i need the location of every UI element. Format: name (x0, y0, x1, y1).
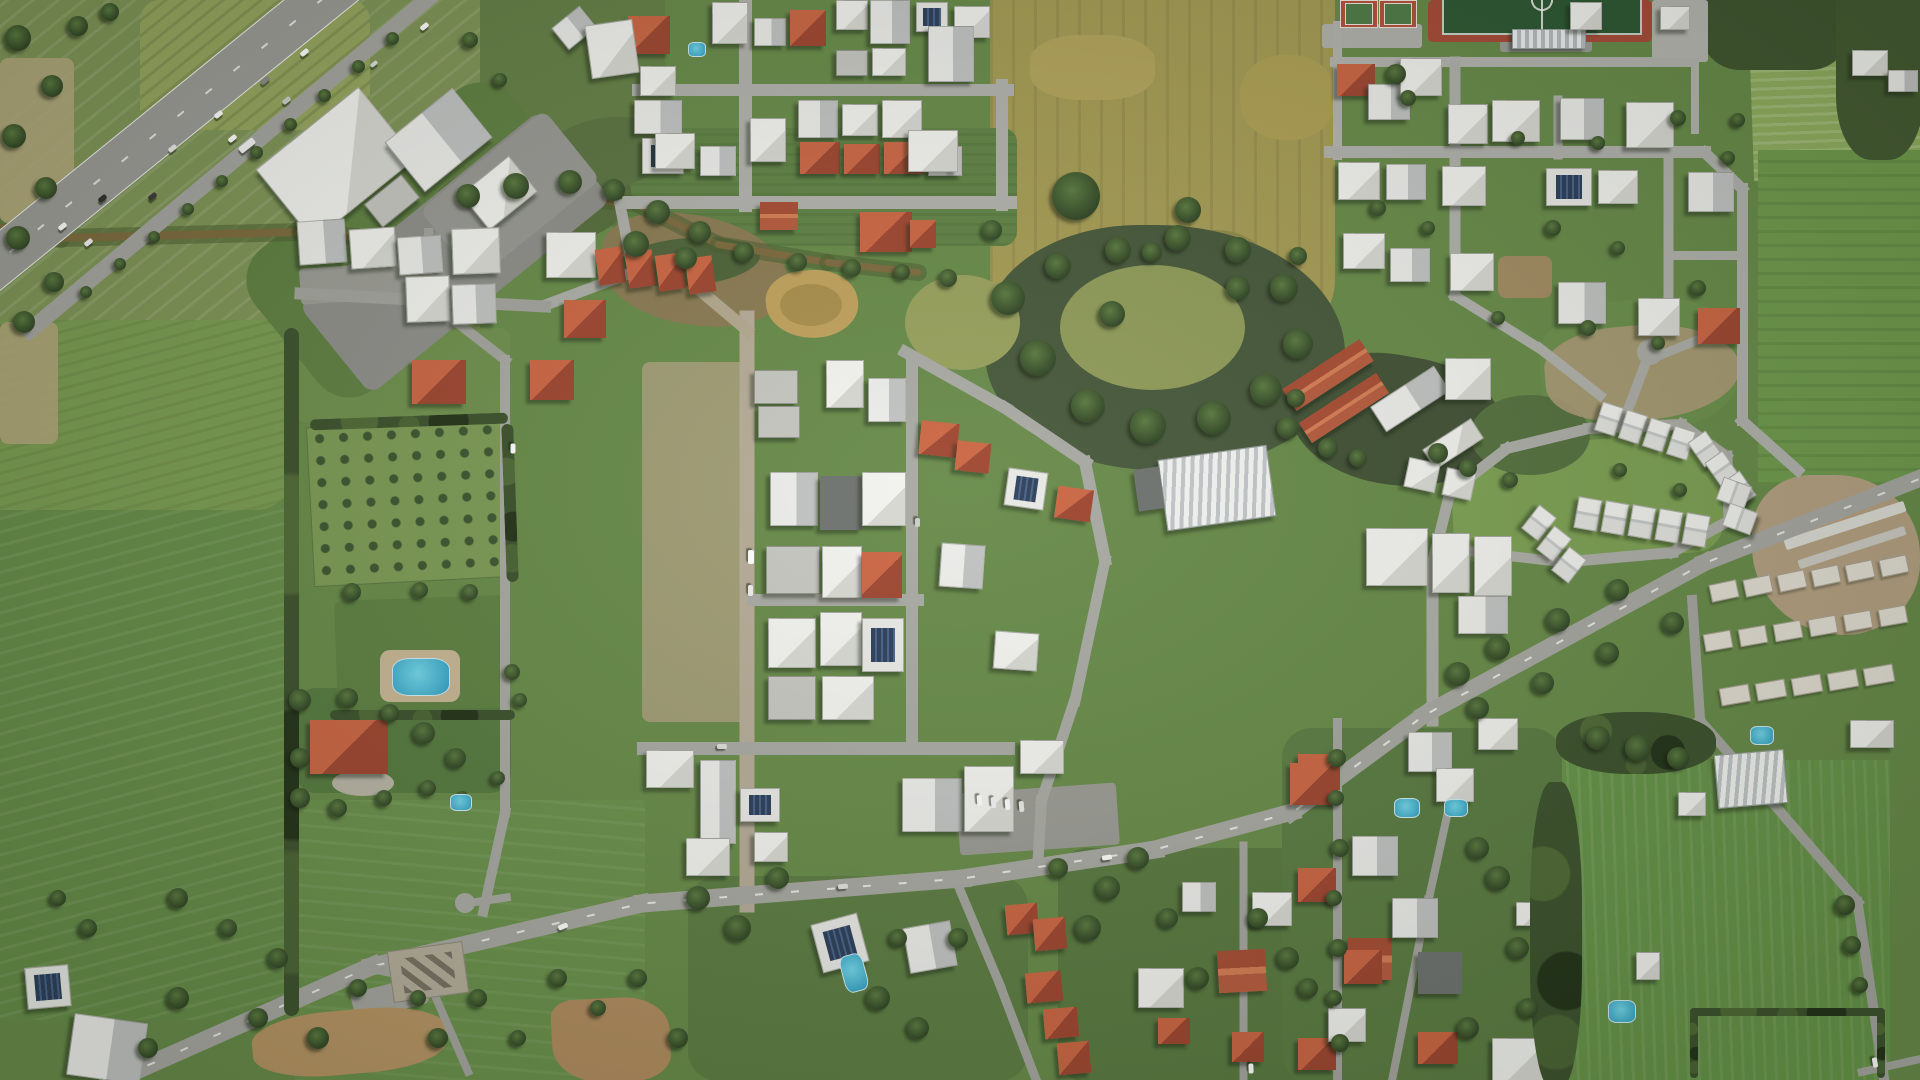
building (700, 760, 736, 844)
tree (1852, 977, 1868, 993)
tennis-court (1340, 0, 1378, 28)
road-segment (1330, 57, 1697, 67)
car (915, 518, 920, 527)
construction-unit (1773, 620, 1804, 643)
building (1458, 596, 1508, 634)
hedge-row (1690, 1008, 1698, 1078)
building (844, 144, 880, 174)
car (717, 744, 727, 749)
building (790, 10, 826, 46)
building (766, 546, 820, 594)
tree (491, 771, 505, 785)
tree (1690, 280, 1706, 296)
tree (1518, 998, 1538, 1018)
tree (1446, 662, 1470, 686)
sports-pavilion (1660, 6, 1690, 30)
tree (1052, 172, 1100, 220)
tree (1270, 274, 1298, 302)
tree (623, 231, 649, 257)
tree (789, 253, 807, 271)
building (1004, 467, 1049, 510)
tree (734, 242, 754, 262)
tree (1127, 847, 1149, 869)
tree (982, 220, 1002, 240)
tree (79, 919, 97, 937)
tree (338, 688, 358, 708)
tree (689, 221, 711, 243)
building (1636, 952, 1660, 980)
tree (290, 748, 310, 768)
building (1478, 718, 1518, 750)
hedge-row (1690, 1008, 1885, 1016)
building (1182, 882, 1216, 912)
building (397, 235, 444, 276)
tree (1511, 131, 1525, 145)
building (1638, 298, 1680, 336)
building (584, 19, 639, 79)
tree (13, 311, 35, 333)
building (655, 133, 695, 169)
building (754, 370, 798, 404)
building (1057, 1041, 1092, 1076)
building (955, 440, 992, 473)
building (1850, 720, 1894, 748)
tree (420, 780, 436, 796)
building (634, 100, 682, 134)
building (1138, 968, 1184, 1008)
car (1019, 801, 1025, 812)
tree (2, 124, 26, 148)
building (1598, 170, 1638, 204)
tree (1298, 978, 1318, 998)
building (939, 543, 986, 590)
tree (646, 200, 670, 224)
building (640, 66, 676, 96)
building (842, 104, 878, 136)
tree (1502, 472, 1518, 488)
tree (1289, 247, 1307, 265)
construction-unit (1791, 674, 1824, 697)
building (870, 0, 910, 44)
road-segment (906, 356, 918, 754)
hedge-row (1877, 1008, 1885, 1078)
tree (1326, 890, 1342, 906)
building (700, 146, 736, 176)
tree (1457, 1017, 1479, 1039)
tree (767, 867, 789, 889)
road-segment (1691, 58, 1699, 134)
building (1678, 792, 1706, 816)
building (451, 283, 496, 325)
building (820, 476, 862, 530)
building (754, 18, 786, 46)
road-segment (1663, 150, 1673, 317)
tree (1662, 612, 1684, 634)
tree (148, 231, 160, 243)
tree (939, 269, 957, 287)
tree (6, 226, 30, 250)
building (862, 552, 902, 598)
tree (603, 179, 625, 201)
building (836, 50, 868, 76)
tree (629, 969, 647, 987)
tree (1277, 947, 1299, 969)
paved-lot (642, 362, 750, 722)
building (872, 48, 906, 76)
tree (50, 890, 66, 906)
construction-unit (1738, 625, 1769, 648)
building (349, 226, 398, 269)
estate-apartment-block (1366, 528, 1428, 586)
tree (894, 264, 910, 280)
building (1698, 308, 1740, 344)
building (546, 232, 596, 278)
building (798, 100, 838, 138)
tree (248, 1008, 268, 1028)
tree (1532, 672, 1554, 694)
car (977, 795, 983, 806)
paved-lot (550, 995, 672, 1080)
swimming-pool (688, 42, 706, 57)
construction-unit (1878, 605, 1909, 628)
tree (549, 969, 567, 987)
building (740, 788, 780, 822)
tree (1326, 990, 1342, 1006)
tree (558, 170, 582, 194)
tree (35, 177, 57, 199)
tree (268, 948, 288, 968)
tree (1283, 329, 1313, 359)
building (908, 130, 958, 172)
tree (1611, 241, 1625, 255)
tree (1459, 459, 1477, 477)
road-segment (740, 311, 755, 913)
tree (44, 272, 64, 292)
building (1392, 898, 1438, 938)
tree (412, 582, 428, 598)
tree (318, 89, 331, 102)
tree (1331, 839, 1349, 857)
building (712, 2, 748, 44)
tree (1486, 866, 1510, 890)
building (1570, 2, 1602, 30)
tree (590, 1000, 606, 1016)
tree (504, 664, 520, 680)
building (800, 142, 840, 174)
building (993, 631, 1040, 672)
tree (456, 184, 480, 208)
building (1338, 162, 1380, 200)
field-patch (1240, 55, 1335, 140)
building (686, 838, 730, 876)
hedge-row (330, 710, 515, 720)
building (1418, 952, 1462, 994)
building (1386, 164, 1426, 200)
tree (510, 1030, 526, 1046)
tree (843, 259, 861, 277)
tree (289, 689, 311, 711)
roadside-commercial (902, 778, 962, 832)
swimming-pool (1394, 798, 1420, 818)
tree (68, 16, 88, 36)
building (1546, 168, 1592, 206)
building (405, 275, 451, 323)
field-patch (1030, 35, 1155, 100)
building (1558, 282, 1606, 324)
tree (1248, 908, 1268, 928)
tree (889, 929, 907, 947)
orange-villa (1217, 949, 1267, 993)
tree (381, 704, 399, 722)
tree (1045, 253, 1071, 279)
car (1248, 1063, 1253, 1073)
tree (290, 788, 310, 808)
tree (1328, 749, 1346, 767)
tree (866, 986, 890, 1010)
building (530, 360, 574, 400)
tree (349, 979, 367, 997)
tree (138, 1038, 158, 1058)
sediment-pond (780, 284, 842, 326)
tree (1731, 113, 1745, 127)
tree (513, 693, 527, 707)
tree (1670, 110, 1686, 126)
tree (352, 60, 365, 73)
steel-warehouse (1158, 445, 1277, 532)
tree (1105, 237, 1131, 263)
tree (675, 247, 697, 269)
building (1390, 248, 1430, 282)
building (1474, 536, 1512, 596)
tree (101, 3, 119, 21)
tree (1673, 483, 1687, 497)
tennis-court (1379, 0, 1417, 28)
tree (376, 790, 392, 806)
swimming-pool (1608, 1000, 1636, 1023)
building (646, 750, 694, 788)
tree (216, 175, 228, 187)
tree (1580, 320, 1596, 336)
tree (686, 886, 710, 910)
building (768, 676, 816, 720)
building (758, 406, 800, 438)
tree (1467, 697, 1489, 719)
tree (114, 258, 126, 270)
tree (343, 583, 361, 601)
tree (1613, 463, 1627, 477)
ruin (387, 941, 469, 1003)
building (1432, 533, 1470, 593)
tree (1370, 200, 1386, 216)
tree (1226, 276, 1250, 300)
building (1888, 70, 1918, 92)
scrub-patch (1060, 265, 1245, 390)
car (838, 884, 848, 890)
tree (250, 146, 263, 159)
building (826, 360, 864, 408)
swimming-pool (392, 658, 450, 696)
building (24, 964, 71, 1010)
road-segment (622, 196, 1017, 209)
car (748, 550, 754, 564)
tree (413, 722, 435, 744)
tree (1597, 642, 1619, 664)
car (511, 444, 516, 454)
tree (1507, 937, 1529, 959)
tree (991, 281, 1025, 315)
tree (307, 1027, 329, 1049)
tree (1099, 301, 1125, 327)
tree (1142, 242, 1162, 262)
tree (1667, 747, 1689, 769)
apartment-block (297, 218, 348, 265)
construction-unit (1827, 669, 1860, 692)
tree (1331, 1034, 1349, 1052)
construction-unit (1703, 630, 1734, 653)
tree (668, 1028, 688, 1048)
tree (1287, 389, 1305, 407)
building (1442, 166, 1486, 206)
road-segment (1737, 183, 1748, 426)
building (1343, 233, 1385, 269)
tree (1130, 408, 1166, 444)
tree (446, 748, 466, 768)
cul-de-sac (455, 893, 475, 913)
road-segment (996, 79, 1008, 211)
building (1344, 950, 1382, 984)
building (1352, 836, 1398, 876)
building (1852, 50, 1888, 76)
building (1560, 98, 1604, 140)
olive-orchard (306, 417, 516, 587)
mansion (310, 720, 388, 774)
building (1232, 1032, 1264, 1062)
tree (1591, 136, 1605, 150)
tree (503, 173, 529, 199)
building (1418, 1032, 1458, 1064)
building (1450, 253, 1494, 291)
tree (80, 286, 92, 298)
building (910, 220, 936, 248)
swimming-pool (1750, 726, 1774, 745)
tree (41, 75, 63, 97)
building (564, 300, 606, 338)
tree (1486, 636, 1510, 660)
road-segment (1068, 553, 1111, 706)
building (918, 420, 959, 458)
tree (5, 25, 31, 51)
tree (329, 799, 347, 817)
tree (1607, 579, 1629, 601)
car (1005, 799, 1011, 810)
car (748, 585, 753, 596)
hedge-row (284, 328, 299, 1016)
tree (1721, 151, 1735, 165)
tree (1843, 936, 1861, 954)
construction-unit (1863, 664, 1896, 687)
road-segment (632, 84, 1014, 96)
tree (1096, 876, 1120, 900)
building (1020, 740, 1064, 774)
tree (1400, 90, 1416, 106)
building (1043, 1007, 1079, 1040)
tree (1225, 237, 1251, 263)
tree (1625, 735, 1651, 761)
tree (410, 990, 426, 1006)
tree (1386, 64, 1406, 84)
tree (462, 584, 478, 600)
tree (428, 1028, 448, 1048)
tree (1328, 790, 1344, 806)
scrub-patch (1700, 0, 1850, 70)
tree (219, 919, 237, 937)
building (1626, 102, 1674, 148)
building (768, 618, 816, 668)
construction-unit (1755, 679, 1788, 702)
building (862, 472, 906, 526)
tree (1158, 908, 1178, 928)
building (928, 26, 974, 82)
building (1445, 358, 1491, 400)
salmon-villa (860, 212, 912, 252)
tree (1175, 197, 1201, 223)
tree (1835, 895, 1855, 915)
tree (167, 987, 189, 1009)
tree (1250, 374, 1282, 406)
tree (1277, 417, 1299, 439)
red-villa (412, 360, 466, 404)
tree (182, 203, 194, 215)
tree (1467, 837, 1489, 859)
building (1054, 486, 1094, 523)
tree (1546, 608, 1570, 632)
tree (907, 1017, 929, 1039)
swimming-pool (1444, 799, 1468, 817)
road-segment (1687, 595, 1706, 726)
building (1688, 172, 1734, 212)
tree (462, 32, 478, 48)
grandstand (1512, 29, 1586, 49)
tree (1491, 311, 1505, 325)
building (1436, 768, 1474, 802)
building (1025, 970, 1063, 1003)
building (451, 227, 501, 275)
farm-warehouse (1714, 749, 1788, 809)
building (822, 676, 874, 720)
car (991, 797, 997, 808)
building (1448, 104, 1488, 144)
building (754, 832, 788, 862)
tree (725, 915, 751, 941)
building (836, 0, 868, 30)
tree (1586, 726, 1610, 750)
building (770, 472, 818, 526)
tree (1318, 438, 1338, 458)
corner-villa (66, 1013, 148, 1080)
building (750, 118, 786, 162)
tree (493, 73, 507, 87)
tree (1197, 401, 1231, 435)
tree (1349, 449, 1367, 467)
field-patch (1758, 150, 1920, 485)
tree (469, 989, 487, 1007)
building (1033, 917, 1068, 952)
road-segment (1664, 251, 1745, 260)
construction-unit (1719, 684, 1752, 707)
tree (1071, 389, 1105, 423)
tree (1075, 915, 1101, 941)
building (1408, 732, 1452, 772)
